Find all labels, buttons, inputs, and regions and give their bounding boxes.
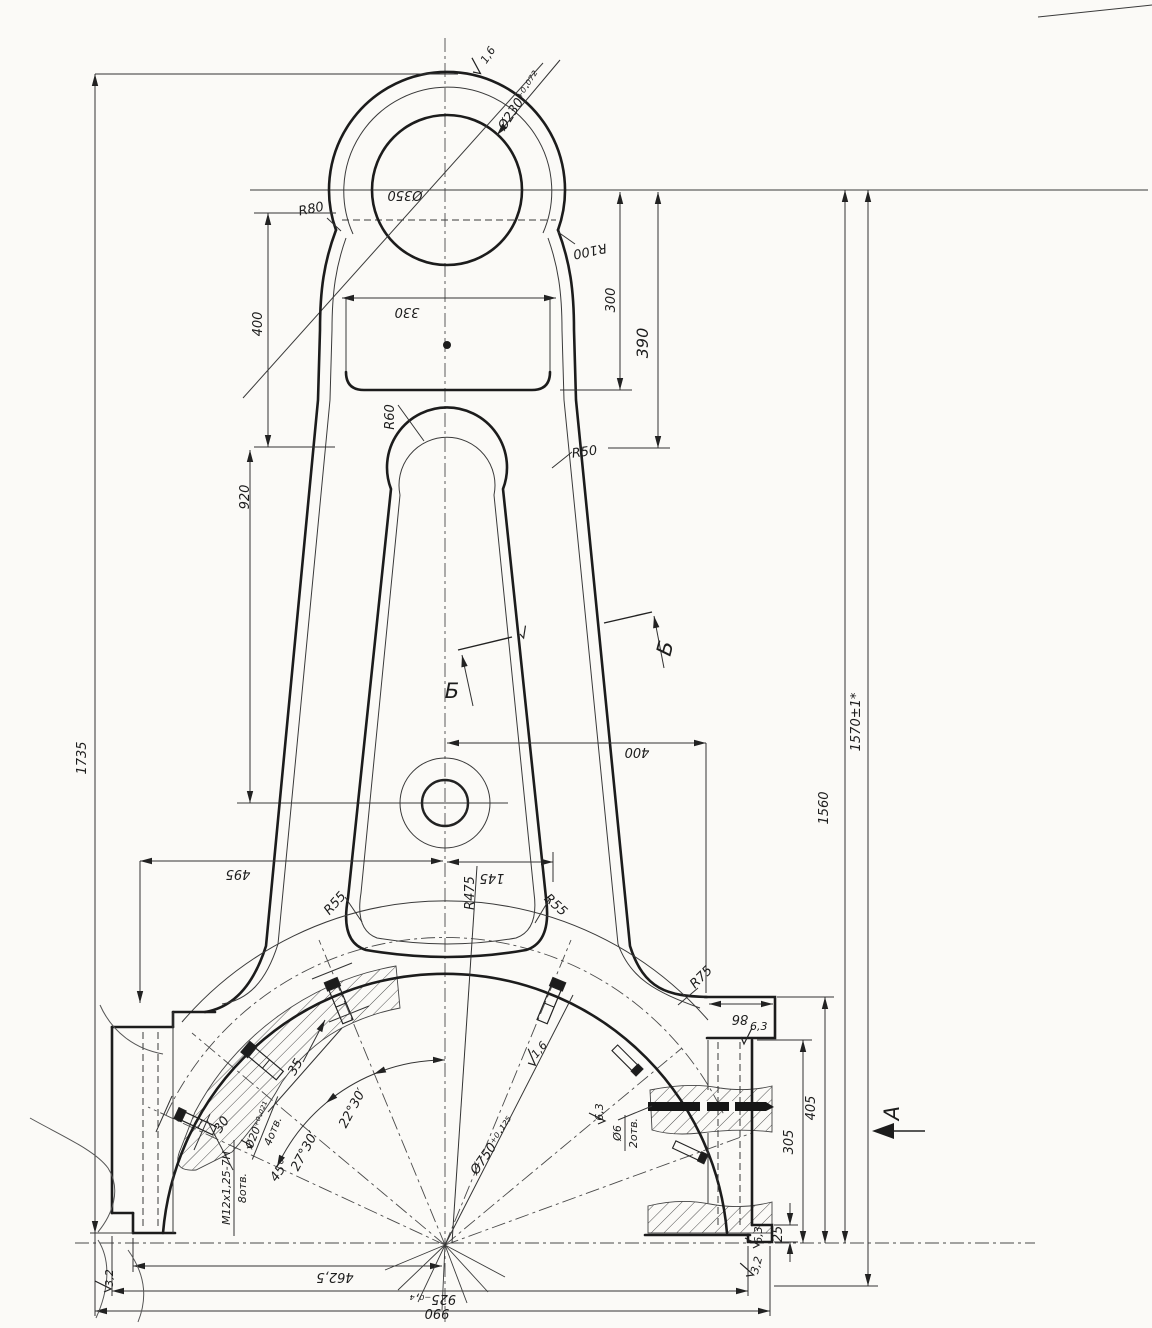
- label-r60: R60: [383, 404, 398, 430]
- label-dia230: Ø230⁺⁰·⁰⁷²: [495, 69, 545, 134]
- label-8otv: 8отв.: [236, 1173, 249, 1203]
- label-305: 305: [782, 1130, 797, 1155]
- blueprint-svg: Ø230⁺⁰·⁰⁷² 1,6 Ø350 R80 R100 330 300 390…: [0, 0, 1152, 1328]
- label-angle-2730: 27°30′: [288, 1129, 321, 1174]
- drawing-sheet: Ø230⁺⁰·⁰⁷² 1,6 Ø350 R80 R100 330 300 390…: [0, 0, 1152, 1328]
- label-r75: R75: [687, 963, 716, 992]
- section-mark-b-right: [604, 612, 652, 623]
- bolt-ray-right-upper: [445, 1048, 682, 1245]
- label-rough32-left: 3,2: [103, 1269, 116, 1287]
- angle-arc-2230: [374, 1060, 445, 1074]
- label-330: 330: [395, 304, 420, 319]
- center-dot: [443, 341, 451, 349]
- leader-dia6: [618, 1106, 652, 1120]
- label-rough63-flange: 6,3: [750, 1020, 768, 1033]
- label-dia6: Ø6: [611, 1125, 624, 1142]
- label-1735: 1735: [75, 741, 90, 774]
- label-rough32-right: 3,2: [748, 1255, 765, 1275]
- label-r80: R80: [297, 200, 325, 220]
- label-r475: R475: [463, 876, 478, 910]
- label-925: 925₋₀,₄: [409, 1291, 456, 1306]
- label-300: 300: [604, 288, 619, 313]
- label-dia750: Ø750⁺⁰·¹²⁵: [467, 1114, 518, 1178]
- label-view-a: А: [880, 1106, 904, 1122]
- label-rough63-pin: 6,3: [593, 1103, 606, 1121]
- stud-phi6-lower: [672, 1140, 708, 1164]
- label-dia350: Ø350: [387, 187, 423, 202]
- label-145: 145: [480, 870, 505, 885]
- label-400-right: 400: [625, 744, 650, 759]
- frame-corner-line: [1038, 5, 1152, 17]
- section-mark-b-left: [458, 637, 512, 650]
- label-25: 25: [771, 1226, 786, 1243]
- label-dia6-group: Ø6 2отв.: [611, 1115, 640, 1151]
- label-920: 920: [238, 485, 253, 510]
- label-405: 405: [804, 1096, 819, 1121]
- label-390: 390: [633, 328, 652, 359]
- leader-r50: [552, 452, 572, 468]
- label-angle-2230: 22°30′: [336, 1086, 369, 1131]
- label-m12: M12x1,25-7H: [220, 1151, 233, 1225]
- label-400-left: 400: [251, 312, 266, 337]
- view-a-arrowhead: [872, 1123, 894, 1139]
- label-section-b-left: Б: [445, 679, 459, 703]
- head-diagonal-construction: [243, 63, 543, 398]
- label-86: 86: [732, 1011, 749, 1026]
- leader-r60: [398, 405, 424, 441]
- label-462: 462,5: [316, 1269, 353, 1284]
- label-angle-45: 45°: [267, 1157, 293, 1184]
- freehand-marks: [30, 1005, 163, 1322]
- label-r100: R100: [572, 240, 608, 262]
- label-r50: R50: [571, 443, 598, 461]
- label-section-b-right: Б: [652, 638, 679, 658]
- label-rough16-top: 1,6: [478, 44, 498, 66]
- stem-left-outer-edge: [205, 230, 336, 1012]
- label-rough63-step: 6,3: [752, 1226, 765, 1244]
- label-2otv: 2отв.: [627, 1118, 640, 1148]
- label-1570: 1570±1*: [849, 692, 864, 751]
- leader-r475: [452, 866, 477, 1243]
- label-m12-group: M12x1,25-7H 8отв.: [220, 1140, 249, 1236]
- label-990: 990: [425, 1305, 450, 1320]
- boss-box-bottom: [346, 372, 550, 390]
- label-495: 495: [226, 866, 251, 881]
- label-1560: 1560: [817, 791, 832, 824]
- section-hatching: [178, 966, 772, 1233]
